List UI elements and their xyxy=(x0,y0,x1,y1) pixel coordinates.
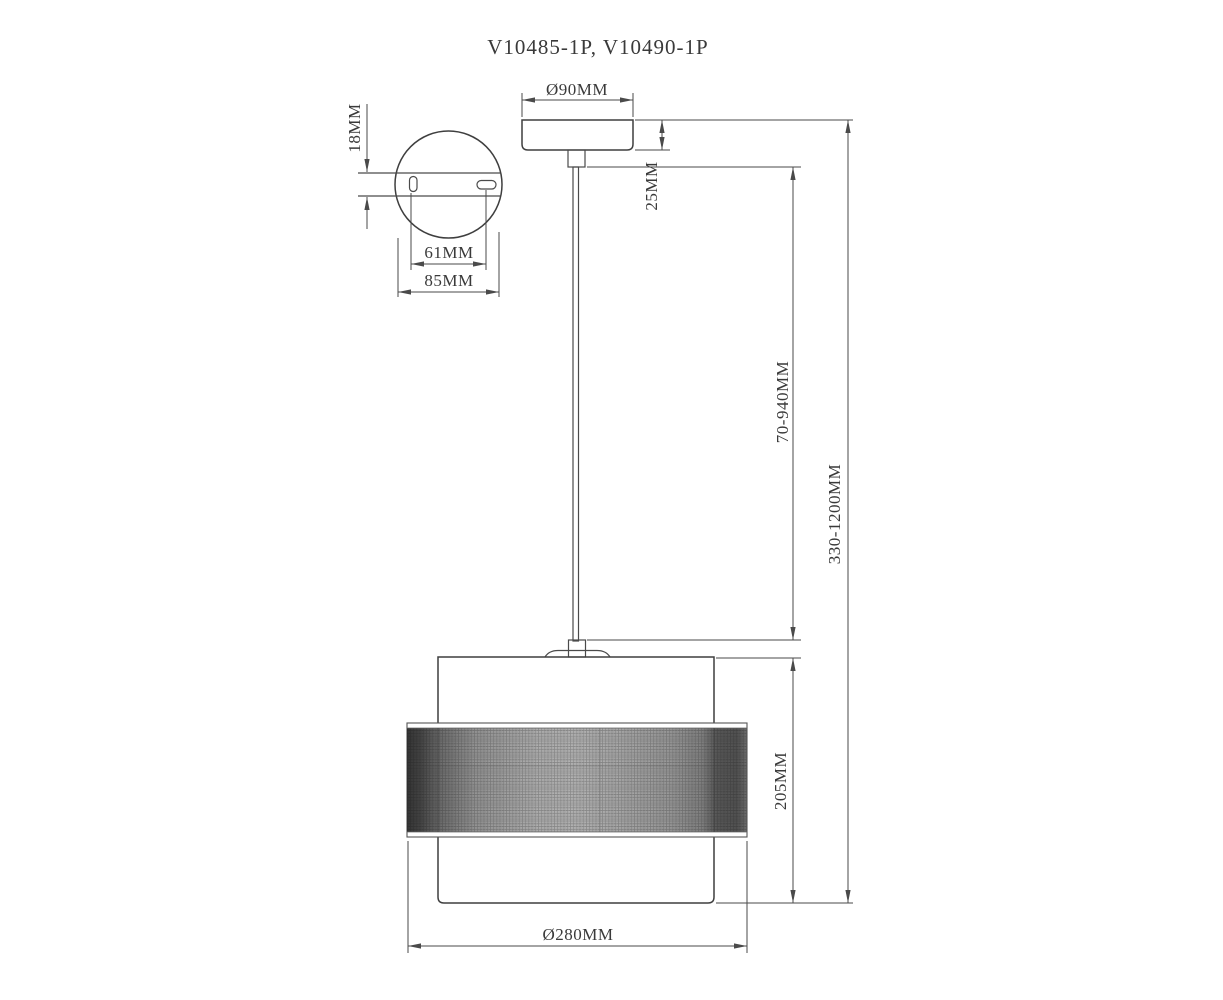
pendant-lamp-diagram: V10485-1P, V10490-1P 18MM 61MM 85MM xyxy=(0,0,1223,1000)
technical-drawing-page: V10485-1P, V10490-1P 18MM 61MM 85MM xyxy=(0,0,1223,1000)
drawing-title: V10485-1P, V10490-1P xyxy=(487,35,708,59)
dim-label-cord-length: 70-940MM xyxy=(773,361,792,443)
dim-label-overall-height: 330-1200MM xyxy=(825,464,844,564)
dim-label-shade-diameter: Ø280MM xyxy=(542,925,613,944)
dim-label-canopy-height: 25MM xyxy=(642,161,661,210)
dim-label-hole-spacing: 61MM xyxy=(424,243,473,262)
mesh-band xyxy=(407,723,747,837)
dim-label-shade-height: 205MM xyxy=(771,752,790,810)
dim-label-canopy-diameter: Ø90MM xyxy=(546,80,608,99)
dim-label-slot-offset: 18MM xyxy=(345,103,364,152)
dim-label-plate-width: 85MM xyxy=(424,271,473,290)
